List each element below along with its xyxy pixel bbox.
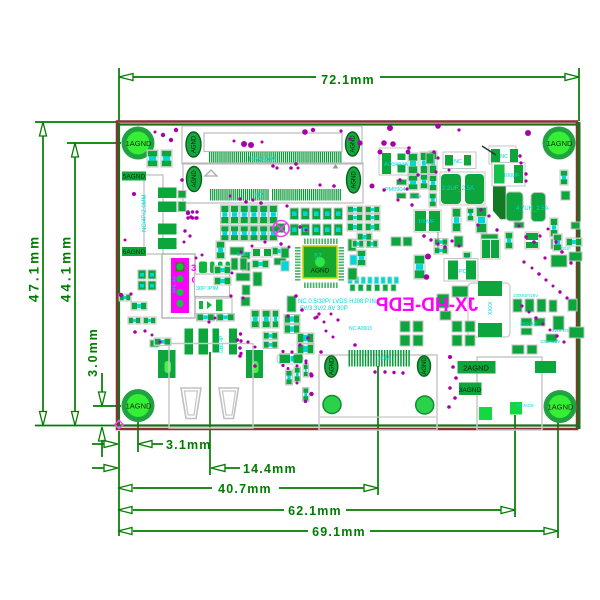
svg-text:NC/4P/2.0MM: NC/4P/2.0MM [142,194,148,232]
svg-text:10UF/25V: 10UF/25V [540,339,560,344]
svg-text:MHL-4A: MHL-4A [172,276,177,293]
svg-text:AO3404A: AO3404A [384,162,408,168]
svg-text:100R: 100R [347,208,359,213]
svg-text:1AGND: 1AGND [547,139,573,148]
svg-text:1AGND: 1AGND [548,403,574,412]
svg-text:3: 3 [191,263,196,274]
svg-text:47.1mm: 47.1mm [27,234,42,302]
svg-text:72.1mm: 72.1mm [321,73,375,87]
svg-text:AGND: AGND [329,357,335,375]
svg-text:NC: NC [500,154,508,160]
svg-text:4.7UH_2.5A: 4.7UH_2.5A [516,206,549,212]
svg-text:HDMI: HDMI [378,356,391,362]
svg-text:NC A0603: NC A0603 [349,326,372,332]
svg-text:HP/2.54M: HP/2.54M [249,157,276,163]
svg-text:2R2/1UF: 2R2/1UF [520,321,538,326]
svg-text:AGND: AGND [422,357,428,375]
svg-text:PC: PC [459,269,467,275]
svg-text:3AGND: 3AGND [459,387,482,394]
svg-text:AGND: AGND [192,135,198,153]
svg-text:3.0mm: 3.0mm [86,327,100,377]
svg-text:XXXX: XXXX [488,301,494,315]
svg-text:5AGND: 5AGND [123,174,146,181]
svg-text:62.1mm: 62.1mm [288,504,342,518]
svg-text:5V/3.3V/2.8V 30P: 5V/3.3V/2.8V 30P [300,306,348,312]
svg-text:AGND: AGND [351,135,357,153]
svg-text:DCJACK: DCJACK [516,403,534,408]
svg-text:AGND: AGND [192,170,198,188]
svg-text:2.2UF_2.5A: 2.2UF_2.5A [442,186,474,192]
svg-text:NC: NC [454,159,462,165]
svg-text:3.1mm: 3.1mm [166,438,212,452]
svg-text:1AGND: 1AGND [126,402,152,411]
svg-text:HP: HP [255,193,263,199]
svg-text:AGND: AGND [311,268,330,275]
svg-text:100UF: 100UF [503,173,520,179]
svg-text:1AGND: 1AGND [126,139,152,148]
svg-text:DOUT: DOUT [237,252,251,258]
svg-text:30P IPIM: 30P IPIM [196,286,219,292]
svg-text:4.7M: 4.7M [411,194,421,199]
svg-text:AGND: AGND [352,171,358,189]
svg-text:40.7mm: 40.7mm [218,482,272,496]
svg-text:57: 57 [314,253,322,260]
svg-text:PM0904: PM0904 [385,187,406,193]
svg-text:100UF: 100UF [418,219,435,225]
svg-text:14.4mm: 14.4mm [243,462,297,476]
svg-text:JX-HD-EDP: JX-HD-EDP [375,295,478,316]
svg-text:69.1mm: 69.1mm [312,525,366,539]
svg-text:2AGND: 2AGND [463,364,489,373]
svg-text:6AGND: 6AGND [123,249,146,256]
svg-text:1000UF/16V: 1000UF/16V [513,293,538,298]
svg-text:44.1mm: 44.1mm [59,234,74,302]
svg-text:NC 0.5/30P/ LVDS HJ08 P.IN: NC 0.5/30P/ LVDS HJ08 P.IN [298,299,376,305]
